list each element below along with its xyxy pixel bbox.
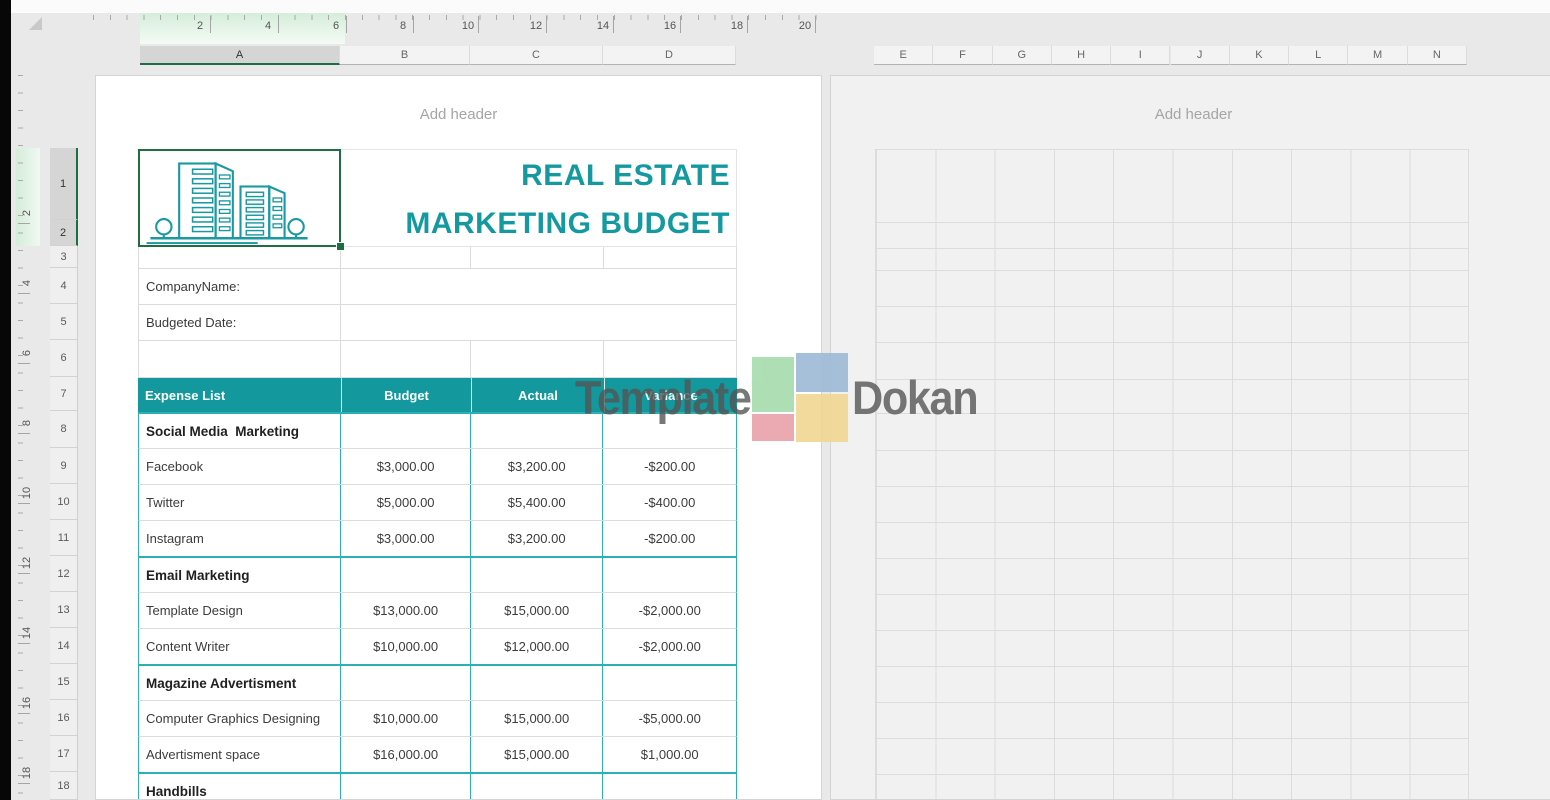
ruler-number: 10 bbox=[21, 485, 33, 501]
grid-row-line bbox=[876, 666, 1468, 667]
column-header-m[interactable]: M bbox=[1348, 46, 1407, 65]
worksheet-page-right: Add header bbox=[830, 75, 1550, 800]
ruler-number: 4 bbox=[21, 275, 33, 291]
table-row: Facebook $3,000.00 $3,200.00 -$200.00 bbox=[138, 448, 737, 484]
row-header-18[interactable]: 18 bbox=[50, 772, 78, 800]
empty-cells-grid[interactable] bbox=[875, 149, 1469, 800]
variance-value[interactable] bbox=[603, 558, 736, 592]
grid-row-line bbox=[876, 630, 1468, 631]
row-header-9[interactable]: 9 bbox=[50, 448, 78, 484]
ruler-number: 14 bbox=[597, 20, 609, 32]
title-band: REAL ESTATE MARKETING BUDGET bbox=[138, 149, 737, 247]
watermark-square-yellow bbox=[796, 394, 848, 442]
grid-row-line bbox=[876, 594, 1468, 595]
variance-value[interactable]: -$200.00 bbox=[603, 521, 736, 556]
logo-cell-selected[interactable] bbox=[138, 149, 341, 247]
row-header-11[interactable]: 11 bbox=[50, 520, 78, 556]
row-header-6[interactable]: 6 bbox=[50, 340, 78, 377]
table-row: Twitter $5,000.00 $5,400.00 -$400.00 bbox=[138, 484, 737, 520]
row-header-15[interactable]: 15 bbox=[50, 664, 78, 700]
table-row: Template Design $13,000.00 $15,000.00 -$… bbox=[138, 592, 737, 628]
row-header-16[interactable]: 16 bbox=[50, 700, 78, 736]
grid-row-line bbox=[876, 522, 1468, 523]
table-row-section: Email Marketing bbox=[138, 556, 737, 592]
ruler-number: 2 bbox=[21, 205, 33, 221]
row-header-13[interactable]: 13 bbox=[50, 592, 78, 628]
ruler-number: 2 bbox=[197, 20, 203, 32]
expense-name[interactable]: Template Design bbox=[139, 593, 341, 628]
actual-value[interactable]: $15,000.00 bbox=[471, 737, 604, 772]
actual-value[interactable]: $12,000.00 bbox=[471, 629, 604, 664]
ruler-number: 20 bbox=[799, 20, 811, 32]
budget-value[interactable]: $5,000.00 bbox=[341, 485, 471, 520]
row-header-4[interactable]: 4 bbox=[50, 268, 78, 304]
column-header-j[interactable]: J bbox=[1171, 46, 1230, 65]
worksheet-page-left: Add header bbox=[95, 75, 822, 800]
expense-name[interactable]: Instagram bbox=[139, 521, 341, 556]
ruler-major-tick bbox=[18, 293, 30, 294]
ruler-number: 8 bbox=[21, 415, 33, 431]
watermark-square-red bbox=[752, 414, 794, 441]
cell[interactable] bbox=[604, 247, 737, 269]
company-name-label[interactable]: CompanyName: bbox=[138, 269, 341, 305]
actual-value[interactable]: $3,200.00 bbox=[471, 521, 604, 556]
excel-page-layout-view: 2468101214161820 24681012141618 ABCDEFGH… bbox=[0, 0, 1550, 800]
budgeted-date-label[interactable]: Budgeted Date: bbox=[138, 305, 341, 341]
variance-value[interactable]: -$2,000.00 bbox=[603, 593, 736, 628]
column-header-h[interactable]: H bbox=[1052, 46, 1111, 65]
expense-name[interactable]: Facebook bbox=[139, 449, 341, 484]
ruler-number: 18 bbox=[731, 20, 743, 32]
grid-row-line bbox=[876, 558, 1468, 559]
ruler-major-tick bbox=[815, 16, 816, 33]
budget-value[interactable] bbox=[341, 558, 471, 592]
ruler-major-tick bbox=[210, 16, 211, 33]
ruler-major-tick bbox=[413, 16, 414, 33]
row-header-8[interactable]: 8 bbox=[50, 411, 78, 448]
expense-name[interactable]: Handbills bbox=[139, 774, 341, 800]
watermark-square-blue bbox=[796, 353, 848, 392]
budget-value[interactable]: $16,000.00 bbox=[341, 737, 471, 772]
expense-name[interactable]: Social Media Marketing bbox=[139, 414, 341, 448]
column-header-d[interactable]: D bbox=[603, 46, 736, 65]
ruler-major-tick bbox=[18, 223, 30, 224]
cell[interactable] bbox=[341, 247, 471, 269]
row-header-3[interactable]: 3 bbox=[50, 246, 78, 268]
actual-value[interactable] bbox=[471, 666, 604, 700]
watermark-word-template: Template bbox=[575, 374, 751, 421]
expense-name[interactable]: Content Writer bbox=[139, 629, 341, 664]
watermark-logo bbox=[752, 352, 848, 442]
grid-row-line bbox=[876, 306, 1468, 307]
document-title: REAL ESTATE MARKETING BUDGET bbox=[341, 149, 737, 247]
grid-row-line bbox=[876, 702, 1468, 703]
ruler-number: 6 bbox=[21, 345, 33, 361]
ruler-major-tick bbox=[278, 16, 279, 33]
grid-row-line bbox=[876, 222, 1468, 223]
ruler-number: 16 bbox=[664, 20, 676, 32]
budget-value[interactable]: $10,000.00 bbox=[341, 629, 471, 664]
expense-name[interactable]: Email Marketing bbox=[139, 558, 341, 592]
selection-fill-handle[interactable] bbox=[336, 242, 345, 251]
ruler-major-tick bbox=[478, 16, 479, 33]
budget-value[interactable] bbox=[341, 414, 471, 448]
ruler-number: 12 bbox=[530, 20, 542, 32]
budget-value[interactable]: $3,000.00 bbox=[341, 521, 471, 556]
ruler-number: 4 bbox=[265, 20, 271, 32]
company-name-value-cell[interactable] bbox=[341, 269, 737, 305]
budget-value[interactable]: $3,000.00 bbox=[341, 449, 471, 484]
add-header-left[interactable]: Add header bbox=[96, 106, 821, 123]
actual-value[interactable] bbox=[471, 558, 604, 592]
ruler-major-tick bbox=[18, 573, 30, 574]
expense-name[interactable]: Magazine Advertisment bbox=[139, 666, 341, 700]
cell[interactable] bbox=[471, 247, 604, 269]
sheet-content: REAL ESTATE MARKETING BUDGET CompanyName… bbox=[138, 149, 737, 800]
column-header-n[interactable]: N bbox=[1408, 46, 1467, 65]
top-strip bbox=[11, 0, 1550, 13]
grid-row-line bbox=[876, 486, 1468, 487]
actual-value[interactable]: $5,400.00 bbox=[471, 485, 604, 520]
column-header-k[interactable]: K bbox=[1230, 46, 1289, 65]
variance-value[interactable] bbox=[603, 774, 736, 800]
cell[interactable] bbox=[138, 341, 341, 378]
company-row: CompanyName: bbox=[138, 269, 737, 305]
budgeted-date-value-cell[interactable] bbox=[341, 305, 737, 341]
ruler-number: 12 bbox=[21, 555, 33, 571]
column-header-f[interactable]: F bbox=[933, 46, 992, 65]
cell[interactable] bbox=[138, 247, 341, 269]
ruler-major-tick bbox=[613, 16, 614, 33]
column-header-l[interactable]: L bbox=[1289, 46, 1348, 65]
row-header-2[interactable]: 2 bbox=[50, 220, 78, 246]
ruler-major-tick bbox=[18, 643, 30, 644]
expense-name[interactable]: Twitter bbox=[139, 485, 341, 520]
row-header-10[interactable]: 10 bbox=[50, 484, 78, 520]
column-header-b[interactable]: B bbox=[340, 46, 470, 65]
budget-value[interactable] bbox=[341, 666, 471, 700]
row-header-5[interactable]: 5 bbox=[50, 304, 78, 340]
ruler-number: 6 bbox=[333, 20, 339, 32]
ruler-major-tick bbox=[18, 783, 30, 784]
grid-row-line bbox=[876, 774, 1468, 775]
column-header-e[interactable]: E bbox=[874, 46, 933, 65]
grid-row-line bbox=[876, 450, 1468, 451]
ruler-number: 10 bbox=[462, 20, 474, 32]
header-expense-list[interactable]: Expense List bbox=[138, 378, 341, 412]
column-header-i[interactable]: I bbox=[1111, 46, 1170, 65]
row-header-12[interactable]: 12 bbox=[50, 556, 78, 592]
ruler-major-tick bbox=[546, 16, 547, 33]
horizontal-ruler[interactable]: 2468101214161820 bbox=[93, 13, 819, 44]
title-line-1: REAL ESTATE bbox=[341, 152, 730, 200]
column-header-g[interactable]: G bbox=[993, 46, 1052, 65]
table-row: Instagram $3,000.00 $3,200.00 -$200.00 bbox=[138, 520, 737, 556]
table-row: Advertisment space $16,000.00 $15,000.00… bbox=[138, 736, 737, 772]
table-row: Computer Graphics Designing $10,000.00 $… bbox=[138, 700, 737, 736]
budget-value[interactable]: $10,000.00 bbox=[341, 701, 471, 736]
grid-row-line bbox=[876, 738, 1468, 739]
ruler-number: 14 bbox=[21, 625, 33, 641]
ruler-number: 16 bbox=[21, 695, 33, 711]
ruler-major-tick bbox=[18, 713, 30, 714]
variance-value[interactable]: $1,000.00 bbox=[603, 737, 736, 772]
row-header-14[interactable]: 14 bbox=[50, 628, 78, 664]
table-row-section: Handbills bbox=[138, 772, 737, 800]
table-row-section: Magazine Advertisment bbox=[138, 664, 737, 700]
vertical-ruler[interactable]: 24681012141618 bbox=[16, 75, 40, 800]
grid-row-line bbox=[876, 248, 1468, 249]
actual-value[interactable]: $15,000.00 bbox=[471, 701, 604, 736]
watermark-square-green bbox=[752, 357, 794, 412]
title-line-2: MARKETING BUDGET bbox=[341, 200, 730, 248]
row-header-7[interactable]: 7 bbox=[50, 377, 78, 411]
budget-date-row: Budgeted Date: bbox=[138, 305, 737, 341]
add-header-right[interactable]: Add header bbox=[831, 106, 1550, 123]
table-row: Content Writer $10,000.00 $12,000.00 -$2… bbox=[138, 628, 737, 664]
ruler-number: 18 bbox=[21, 765, 33, 781]
variance-value[interactable]: -$200.00 bbox=[603, 449, 736, 484]
actual-value[interactable]: $3,200.00 bbox=[471, 449, 604, 484]
row-header-17[interactable]: 17 bbox=[50, 736, 78, 772]
vertical-ruler-ticks bbox=[18, 75, 23, 800]
actual-value[interactable]: $15,000.00 bbox=[471, 593, 604, 628]
ruler-major-tick bbox=[680, 16, 681, 33]
budget-value[interactable] bbox=[341, 774, 471, 800]
header-budget[interactable]: Budget bbox=[341, 378, 471, 412]
variance-value[interactable]: -$2,000.00 bbox=[603, 629, 736, 664]
ruler-major-tick bbox=[18, 363, 30, 364]
actual-value[interactable] bbox=[471, 774, 604, 800]
ruler-number: 8 bbox=[400, 20, 406, 32]
variance-value[interactable] bbox=[603, 666, 736, 700]
expense-name[interactable]: Advertisment space bbox=[139, 737, 341, 772]
margin-corner-icon bbox=[29, 17, 42, 30]
watermark-word-dokan: Dokan bbox=[852, 374, 977, 421]
ruler-major-tick bbox=[346, 16, 347, 33]
column-header-c[interactable]: C bbox=[470, 46, 603, 65]
ruler-major-tick bbox=[747, 16, 748, 33]
cell[interactable] bbox=[341, 341, 471, 378]
ruler-major-tick bbox=[18, 433, 30, 434]
budget-value[interactable]: $13,000.00 bbox=[341, 593, 471, 628]
row-header-1[interactable]: 1 bbox=[50, 148, 78, 220]
left-edge-strip bbox=[0, 0, 11, 800]
grid-row-line bbox=[876, 342, 1468, 343]
column-header-a[interactable]: A bbox=[140, 46, 340, 65]
variance-value[interactable]: -$5,000.00 bbox=[603, 701, 736, 736]
variance-value[interactable]: -$400.00 bbox=[603, 485, 736, 520]
expense-name[interactable]: Computer Graphics Designing bbox=[139, 701, 341, 736]
grid-row-line bbox=[876, 270, 1468, 271]
spacer-row bbox=[138, 247, 737, 269]
ruler-major-tick bbox=[18, 503, 30, 504]
